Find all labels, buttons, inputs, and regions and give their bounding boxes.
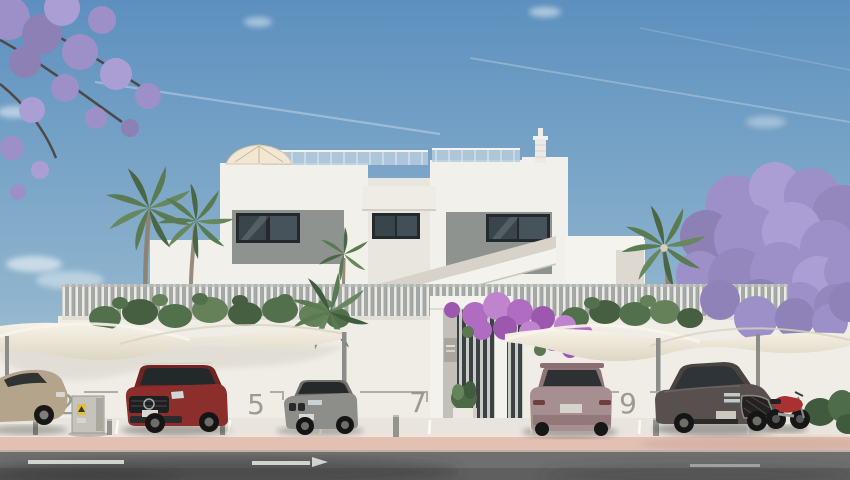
window-upper-center [372,213,420,239]
gate-planter-plant [451,381,477,424]
window-upper-left [236,213,300,243]
bay-number-7: 7 [409,386,427,419]
center-awning [362,186,436,210]
architectural-render: 2 5 7 9 [0,0,850,480]
bay-number-9: 9 [619,387,637,420]
window-upper-right [486,214,550,242]
gate-sign-plaque [444,338,457,362]
bay-number-5: 5 [247,388,265,421]
